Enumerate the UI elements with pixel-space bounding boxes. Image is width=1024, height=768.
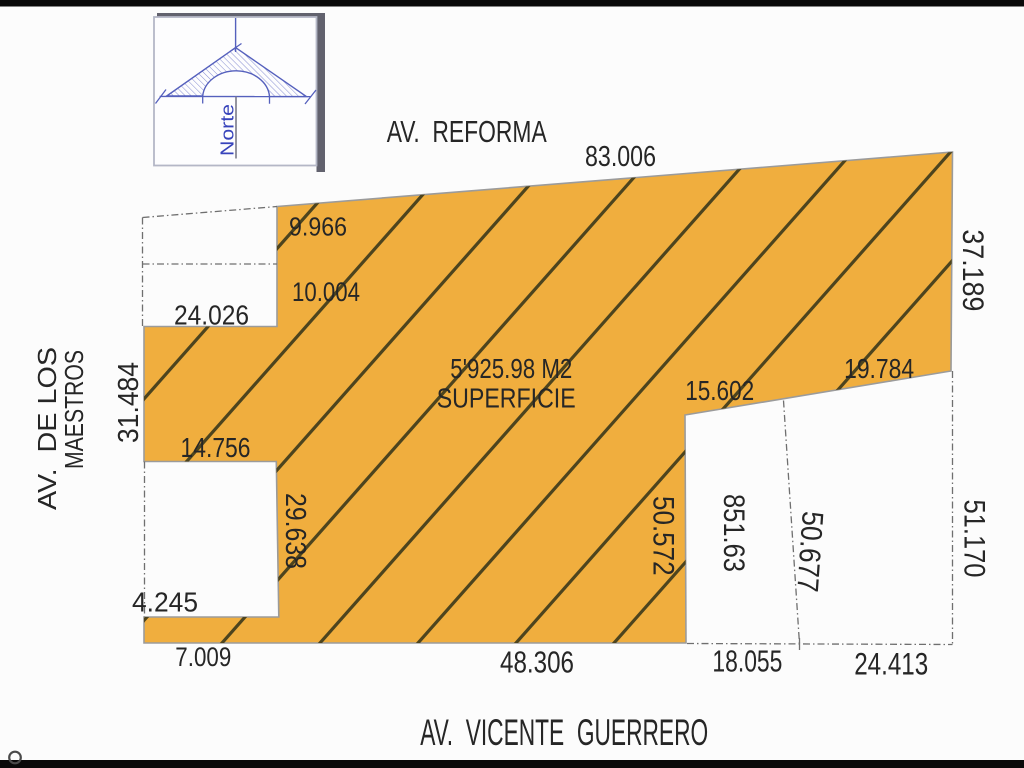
svg-text:AV. REFORMA: AV. REFORMA [387,114,547,149]
svg-text:4.245: 4.245 [132,587,198,618]
svg-text:18.055: 18.055 [712,644,782,679]
svg-text:SUPERFICIE: SUPERFICIE [437,383,576,414]
svg-text:5'925.98 M2: 5'925.98 M2 [450,353,572,384]
svg-text:Norte: Norte [217,104,238,156]
svg-text:AV. VICENTE GUERRERO: AV. VICENTE GUERRERO [420,712,708,753]
svg-text:19.784: 19.784 [844,353,914,384]
svg-text:24.026: 24.026 [174,300,249,331]
svg-text:24.413: 24.413 [854,646,928,682]
svg-text:29.638: 29.638 [279,493,311,569]
svg-text:MAESTROS: MAESTROS [59,350,89,469]
svg-text:31.484: 31.484 [113,362,145,443]
svg-text:48.306: 48.306 [500,645,574,680]
svg-text:50.677: 50.677 [790,510,829,593]
svg-text:9.966: 9.966 [289,212,347,242]
svg-text:83.006: 83.006 [585,141,656,173]
svg-text:851.63: 851.63 [717,494,750,572]
svg-text:51.170: 51.170 [958,500,991,578]
svg-text:15.602: 15.602 [685,375,754,406]
svg-text:37.189: 37.189 [956,229,989,311]
svg-text:AV. DE LOS: AV. DE LOS [32,347,62,510]
svg-text:14.756: 14.756 [181,432,251,463]
svg-text:50.572: 50.572 [647,496,680,576]
svg-text:7.009: 7.009 [175,642,231,672]
svg-text:10.004: 10.004 [292,277,360,307]
